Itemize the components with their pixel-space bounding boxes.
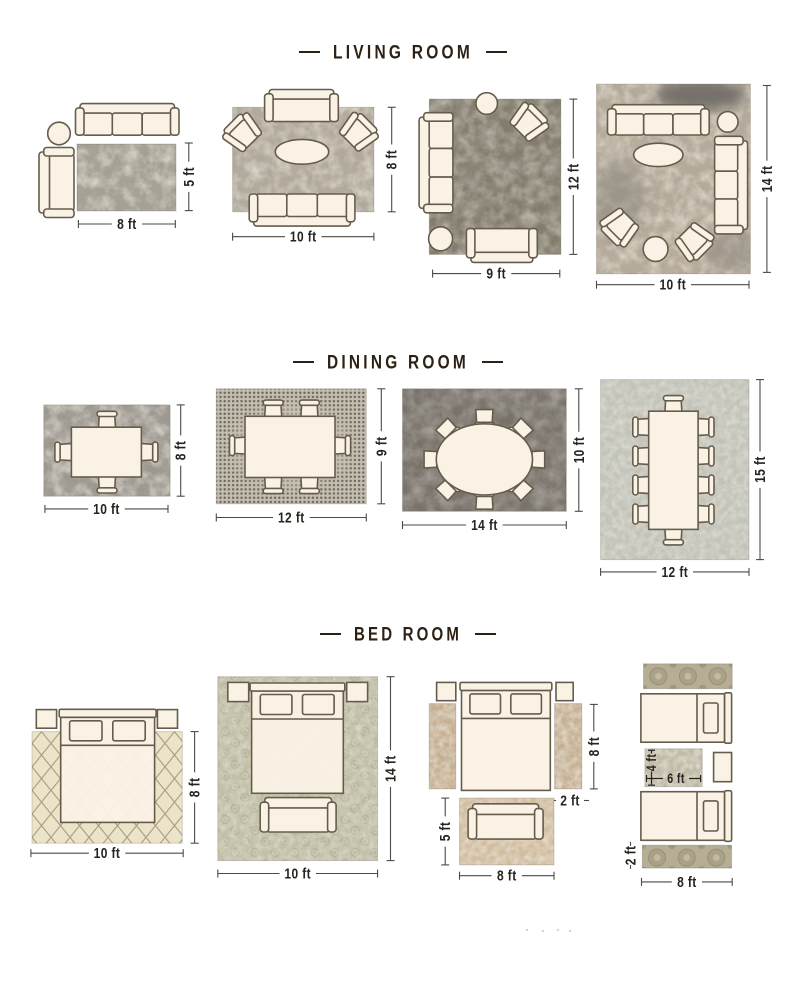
svg-text:10 ft: 10 ft [290, 228, 317, 245]
svg-text:14 ft: 14 ft [382, 755, 399, 782]
svg-text:14 ft: 14 ft [759, 166, 776, 193]
svg-text:10 ft: 10 ft [93, 501, 120, 518]
svg-text:2 ft: 2 ft [622, 846, 639, 866]
svg-text:8 ft: 8 ft [383, 150, 400, 170]
svg-text:10 ft: 10 ft [659, 276, 686, 293]
svg-text:8 ft: 8 ft [172, 441, 189, 461]
svg-text:BED ROOM: BED ROOM [354, 625, 462, 646]
svg-text:14 ft: 14 ft [471, 517, 498, 534]
svg-text:8 ft: 8 ft [677, 874, 697, 891]
svg-text:8 ft: 8 ft [585, 737, 602, 757]
svg-text:12 ft: 12 ft [661, 564, 688, 581]
svg-text:2 ft: 2 ft [560, 792, 580, 809]
svg-text:4 ft: 4 ft [644, 754, 660, 772]
svg-text:5 ft: 5 ft [437, 822, 454, 842]
svg-text:10 ft: 10 ft [570, 437, 587, 464]
svg-text:9 ft: 9 ft [373, 437, 390, 457]
svg-text:6 ft: 6 ft [667, 771, 685, 787]
svg-text:15 ft: 15 ft [752, 456, 769, 483]
svg-text:DINING ROOM: DINING ROOM [327, 353, 469, 374]
svg-text:8 ft: 8 ft [497, 867, 517, 884]
svg-text:8 ft: 8 ft [186, 778, 203, 798]
svg-text:5 ft: 5 ft [180, 167, 197, 187]
svg-text:10 ft: 10 ft [284, 865, 311, 882]
svg-text:10 ft: 10 ft [94, 845, 121, 862]
svg-text:9 ft: 9 ft [486, 265, 506, 282]
svg-text:12 ft: 12 ft [565, 163, 582, 190]
svg-text:8 ft: 8 ft [117, 216, 137, 233]
svg-text:12 ft: 12 ft [278, 509, 305, 526]
svg-text:LIVING ROOM: LIVING ROOM [333, 43, 473, 64]
